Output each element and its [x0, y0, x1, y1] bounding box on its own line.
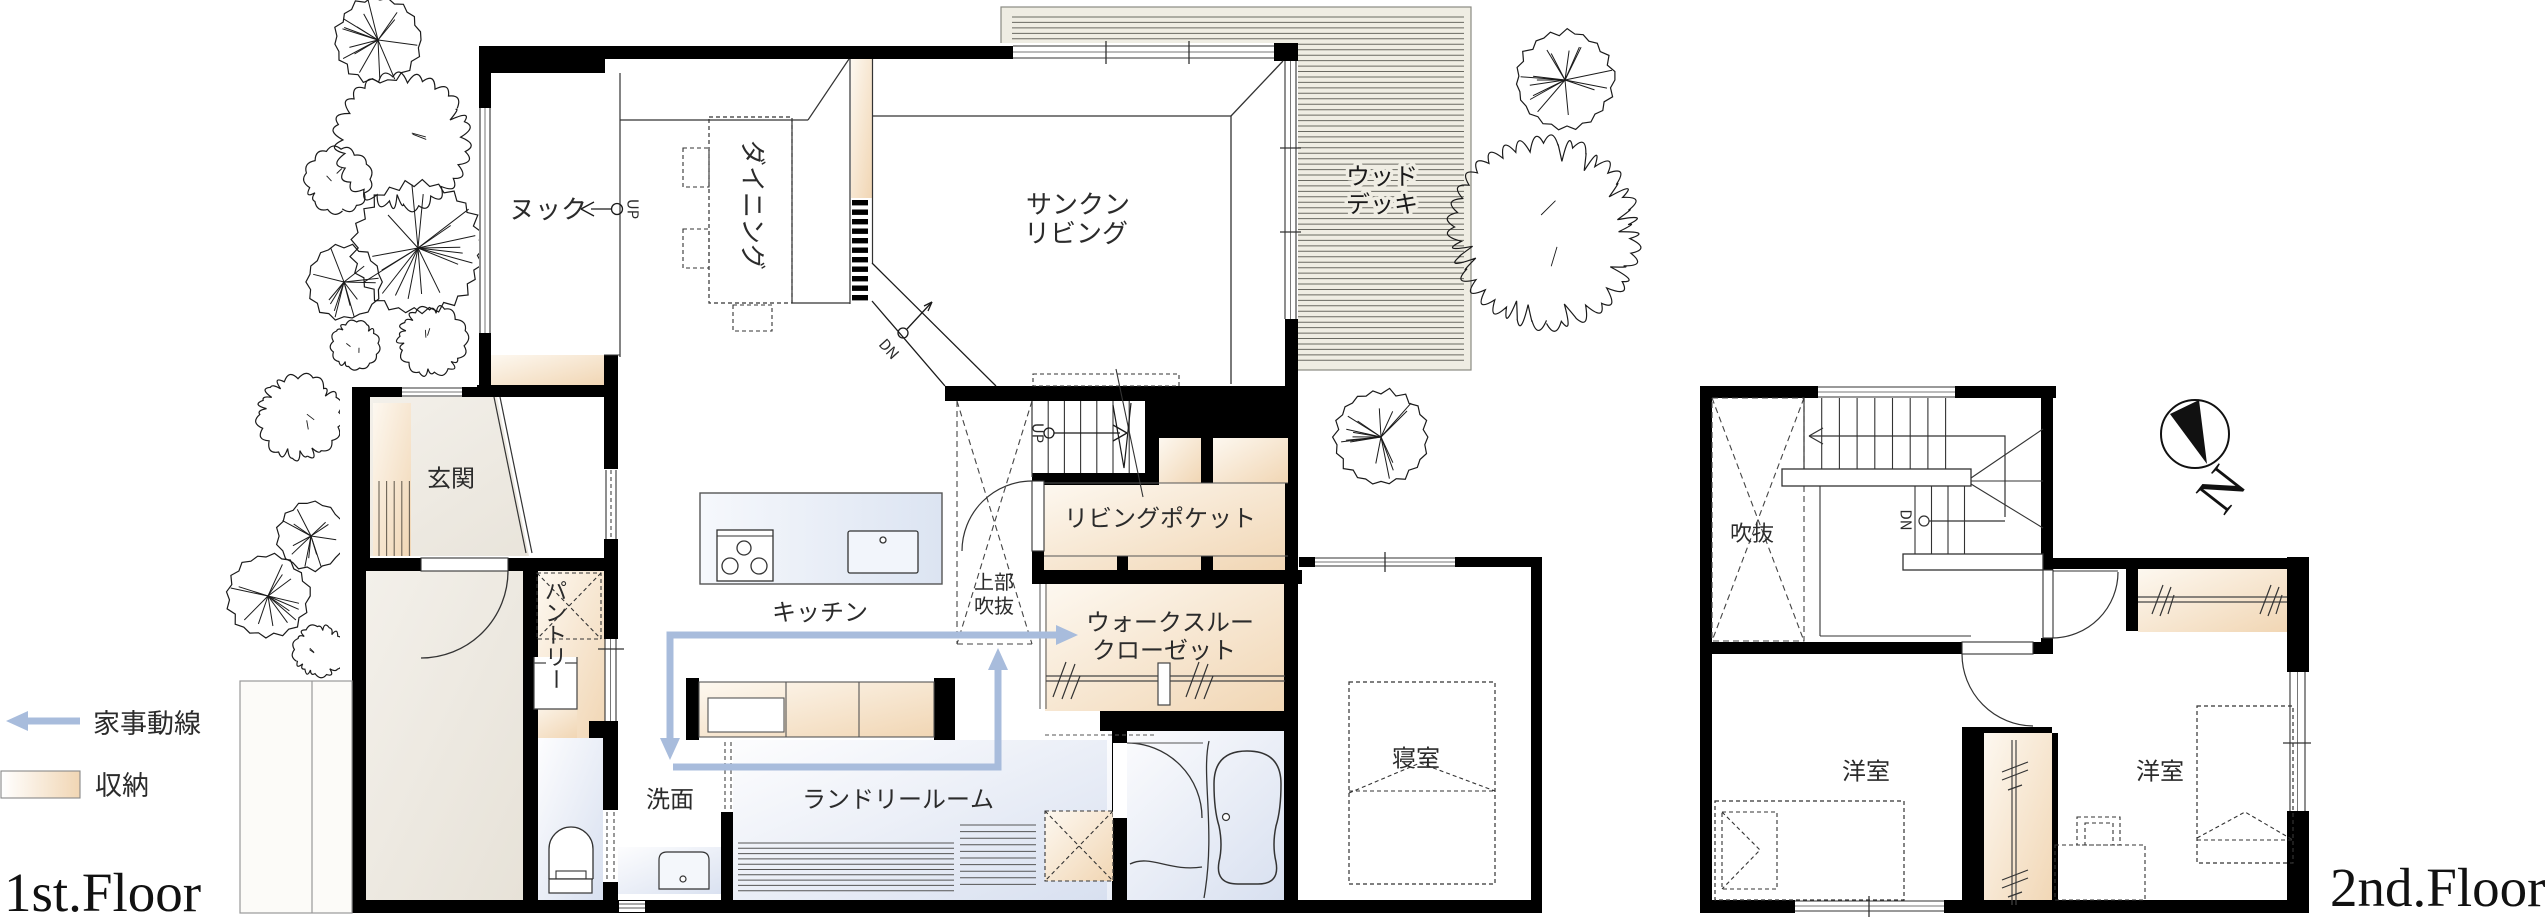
svg-text:2nd.Floor: 2nd.Floor — [2330, 857, 2545, 918]
svg-text:1st.Floor: 1st.Floor — [4, 862, 201, 918]
